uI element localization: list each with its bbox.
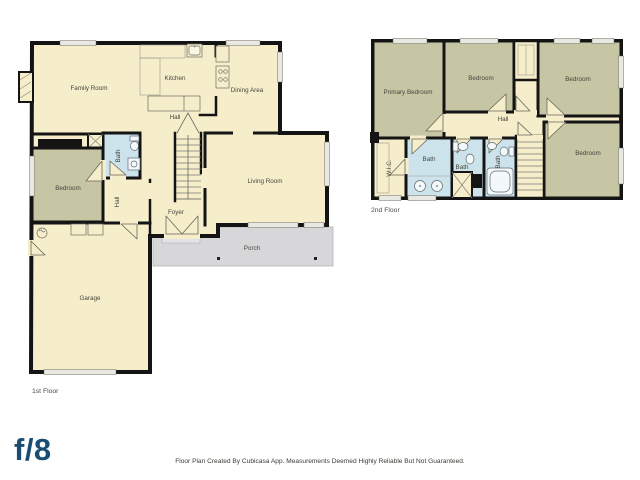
- first-floor-title: 1st Floor: [32, 388, 59, 395]
- sink-icon: [466, 154, 474, 164]
- hall2-label: Hall: [114, 197, 121, 208]
- wic-label: W.I.C.: [386, 159, 393, 176]
- hall-closet: [514, 41, 538, 80]
- floorplan-image: Family Room Kitchen Dining Area Hall Bat…: [0, 0, 640, 480]
- fridge-icon: [216, 46, 229, 62]
- family-room-label: Family Room: [70, 85, 107, 92]
- linen-closet-icon: [452, 172, 472, 198]
- first-floor-plan: Family Room Kitchen Dining Area Hall Bat…: [19, 41, 333, 396]
- bedroom-bottom-right-label: Bedroom: [575, 150, 601, 157]
- fireplace-icon: [19, 72, 33, 102]
- bath-primary-label: Bath: [423, 156, 436, 163]
- foyer-label: Foyer: [168, 209, 184, 216]
- second-floor-plan: Primary Bedroom Bedroom Bedroom Hall W.I…: [370, 39, 624, 215]
- chimney-block: [370, 132, 379, 143]
- dining-area-label: Dining Area: [231, 87, 264, 94]
- garage-label: Garage: [79, 295, 101, 302]
- bathtub-icon: [487, 168, 513, 195]
- bath-middle-label: Bath: [456, 164, 469, 171]
- stove-icon: [216, 66, 229, 88]
- toilet-icon: [500, 147, 514, 156]
- bathroom-sink-icon: [128, 158, 140, 170]
- kitchen-island: [148, 96, 200, 111]
- closet-icon: [88, 134, 103, 148]
- disclaimer-text: Floor Plan Created By Cubicasa App. Meas…: [0, 458, 640, 465]
- appliance-icon: [88, 224, 103, 235]
- bath-label: Bath: [115, 149, 122, 162]
- bedroom-top-middle-label: Bedroom: [468, 75, 494, 82]
- porch-post-icon: [217, 257, 220, 260]
- appliance-icon: [71, 224, 86, 235]
- water-heater-icon: [37, 228, 47, 238]
- sink-icon: [488, 143, 497, 150]
- bedroom-label: Bedroom: [55, 185, 81, 192]
- garage-door-opening: [44, 370, 116, 375]
- wall-block-2: [472, 174, 482, 188]
- porch-post-icon: [314, 257, 317, 260]
- hall2f-label: Hall: [498, 116, 509, 123]
- bedroom-top-right-label: Bedroom: [565, 76, 591, 83]
- kitchen-sink-icon: [187, 44, 202, 57]
- hall-label: Hall: [170, 114, 181, 121]
- bath-right-label: Bath: [495, 155, 502, 168]
- stairs-second-floor: [516, 136, 544, 198]
- living-room-label: Living Room: [248, 178, 283, 185]
- kitchen-label: Kitchen: [164, 75, 186, 82]
- toilet-icon: [453, 142, 468, 151]
- porch-label: Porch: [244, 245, 261, 252]
- room-bedroom-bottom-right: [544, 122, 621, 198]
- primary-bedroom-label: Primary Bedroom: [384, 89, 433, 96]
- floorplan-page: Family Room Kitchen Dining Area Hall Bat…: [0, 0, 640, 480]
- toilet-icon: [130, 136, 139, 151]
- second-floor-title: 2nd Floor: [371, 207, 400, 214]
